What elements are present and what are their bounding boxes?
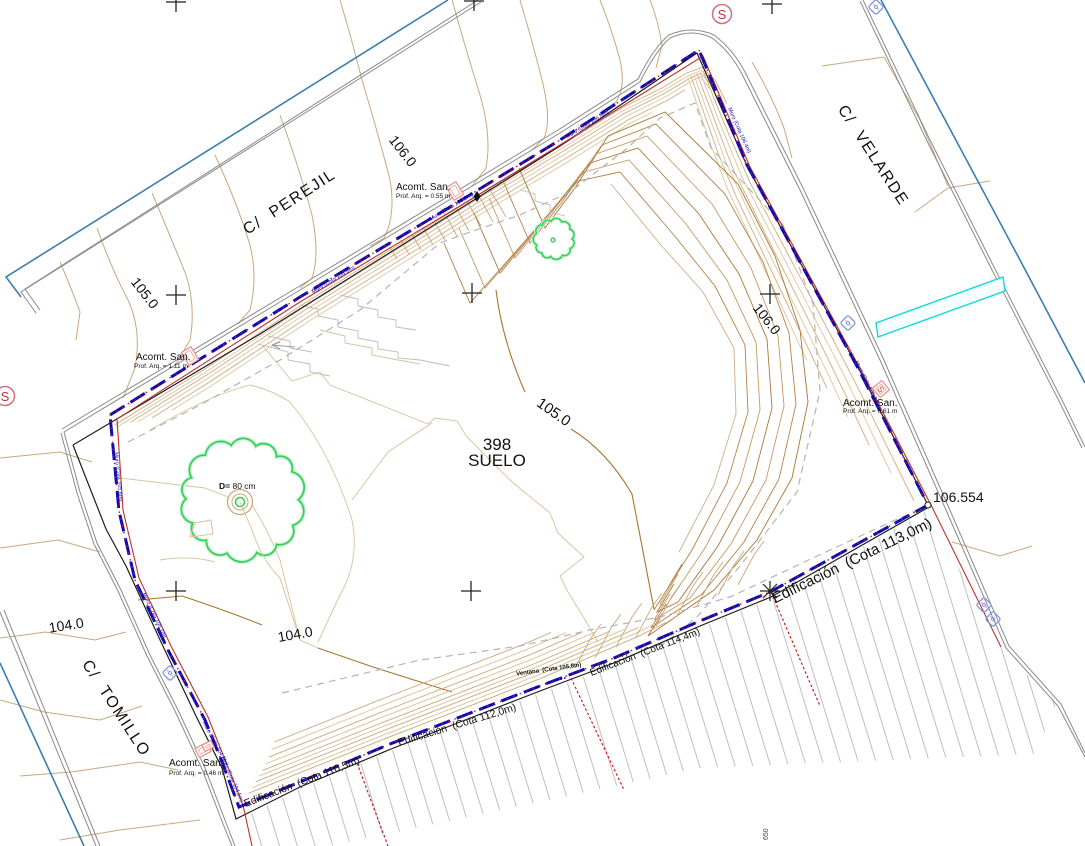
svg-text:S: S bbox=[1, 389, 10, 404]
svg-text:SUELO: SUELO bbox=[468, 451, 526, 470]
svg-text:Prof. Arq. = 1.11 m: Prof. Arq. = 1.11 m bbox=[134, 363, 188, 370]
svg-text:Acomt. San.: Acomt. San. bbox=[136, 352, 190, 363]
svg-text:D= 80 cm: D= 80 cm bbox=[219, 481, 256, 491]
svg-text:Prof. Arq. = 0.61 m: Prof. Arq. = 0.61 m bbox=[843, 408, 897, 415]
svg-text:Acomt. San.: Acomt. San. bbox=[396, 182, 450, 193]
svg-text:Acomt. San.: Acomt. San. bbox=[169, 758, 223, 769]
svg-text:650: 650 bbox=[763, 828, 770, 840]
svg-text:S: S bbox=[718, 7, 727, 22]
svg-text:Prof. Arq. = 0.55 m: Prof. Arq. = 0.55 m bbox=[396, 193, 450, 200]
svg-text:106.554: 106.554 bbox=[933, 489, 984, 505]
svg-text:Prof. Arq. = 0.46 m: Prof. Arq. = 0.46 m bbox=[169, 770, 223, 777]
